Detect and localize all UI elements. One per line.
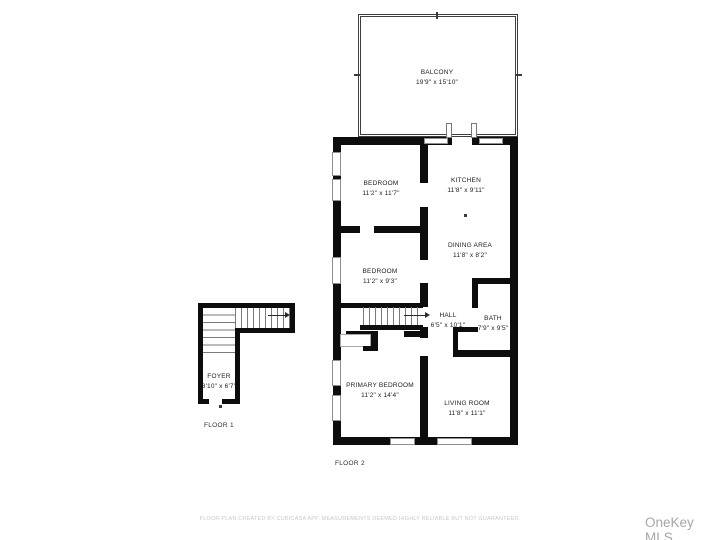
room-label-bath: BATH 7'9" x 9'5" xyxy=(468,314,518,334)
room-dims: 7'9" x 9'5" xyxy=(468,324,518,334)
wall xyxy=(333,437,518,445)
floor2-title: FLOOR 2 xyxy=(335,460,365,467)
room-dims: 3'10" x 6'7" xyxy=(194,382,244,392)
door-leaf xyxy=(446,123,452,138)
room-label-kitchen: KITCHEN 11'8" x 9'11" xyxy=(416,176,516,196)
floor1-title: FLOOR 1 xyxy=(204,422,234,429)
wall xyxy=(453,350,518,357)
room-label-dining: DINING AREA 11'8" x 8'2" xyxy=(420,241,520,261)
stairs-direction-arrow xyxy=(404,315,425,316)
door-opening xyxy=(360,226,374,233)
dimension-tick xyxy=(436,12,438,19)
dimension-tick xyxy=(515,74,522,76)
room-label-living: LIVING ROOM 11'8" x 11'1" xyxy=(417,399,517,419)
room-name: PRIMARY BEDROOM xyxy=(325,381,435,391)
room-name: BATH xyxy=(468,314,518,324)
room-name: LIVING ROOM xyxy=(417,399,517,409)
room-label-balcony: BALCONY 19'9" x 15'10" xyxy=(387,68,487,88)
staircase-floor2 xyxy=(363,307,423,325)
window xyxy=(479,138,503,144)
room-dims: 6'5" x 10'1" xyxy=(424,321,472,331)
room-name: HALL xyxy=(424,311,472,321)
wall xyxy=(472,278,518,284)
wall xyxy=(235,328,240,404)
room-name: BEDROOM xyxy=(330,267,430,277)
window xyxy=(332,152,341,176)
door-opening xyxy=(452,137,472,145)
fixture-mark xyxy=(464,214,467,217)
staircase-floor1-lower xyxy=(203,308,235,353)
disclaimer-text: FLOOR PLAN CREATED BY CUBICASA APP. MEAS… xyxy=(110,516,610,522)
room-label-hall: HALL 6'5" x 10'1" xyxy=(424,311,472,331)
door-leaf xyxy=(471,123,477,138)
room-name: FOYER xyxy=(194,372,244,382)
window xyxy=(390,438,415,445)
stairs-direction-arrow xyxy=(268,315,285,316)
room-name: BALCONY xyxy=(387,68,487,78)
room-dims: 11'2" x 9'3" xyxy=(330,277,430,287)
room-dims: 11'8" x 9'11" xyxy=(416,186,516,196)
room-dims: 11'8" x 8'2" xyxy=(420,251,520,261)
window xyxy=(424,138,448,144)
entry-door-opening xyxy=(209,399,222,404)
room-name: KITCHEN xyxy=(416,176,516,186)
wall xyxy=(472,278,478,308)
floor-plan-canvas: BALCONY 19'9" x 15'10" BEDROOM 11'2" x 1… xyxy=(0,0,720,540)
wall xyxy=(333,226,428,233)
wall xyxy=(360,325,423,330)
door-opening xyxy=(420,338,428,356)
room-label-foyer: FOYER 3'10" x 6'7" xyxy=(194,372,244,392)
window xyxy=(437,438,472,445)
wall xyxy=(238,328,295,333)
room-dims: 19'9" x 15'10" xyxy=(387,78,487,88)
stairs-direction-arrow-head xyxy=(285,312,290,318)
wall xyxy=(363,346,378,351)
room-name: DINING AREA xyxy=(420,241,520,251)
staircase-floor1-upper xyxy=(235,308,290,328)
door-opening xyxy=(378,331,404,337)
door-mark xyxy=(219,405,222,408)
room-dims: 11'8" x 11'1" xyxy=(417,409,517,419)
room-label-bedroom-mid: BEDROOM 11'2" x 9'3" xyxy=(330,267,430,287)
dimension-tick xyxy=(354,74,361,76)
onekey-mls-watermark: OneKey MLS xyxy=(645,515,720,540)
